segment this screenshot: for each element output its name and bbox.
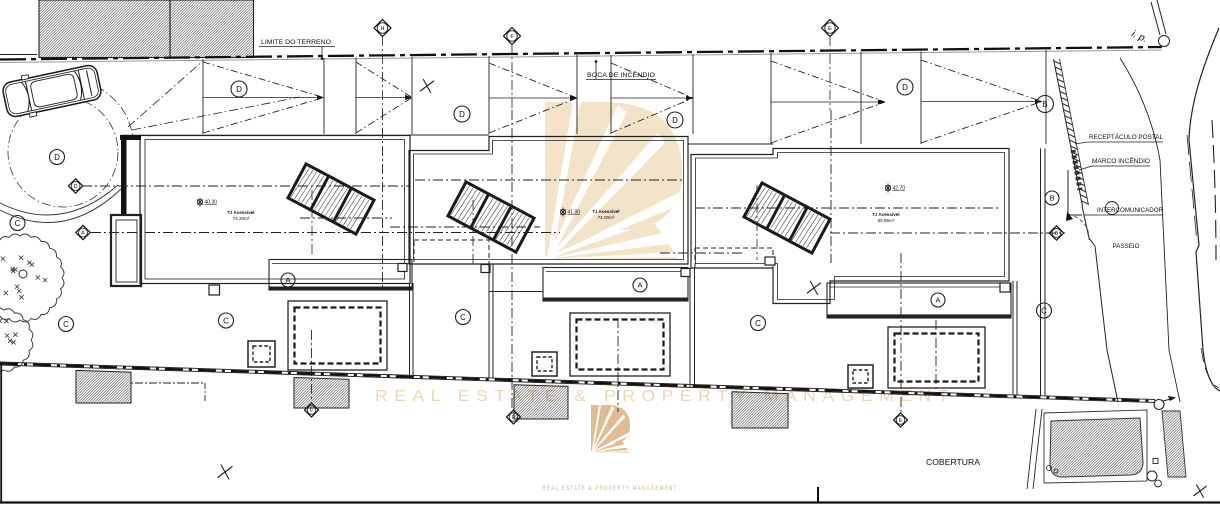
svg-text:60.85m²: 60.85m² <box>878 218 895 223</box>
svg-text:E: E <box>828 26 832 32</box>
svg-text:42.70: 42.70 <box>893 186 906 192</box>
svg-text:C: C <box>63 320 69 329</box>
svg-text:C: C <box>223 316 229 325</box>
svg-text:INTERCOMUNICADOR: INTERCOMUNICADOR <box>1097 207 1163 214</box>
svg-text:A: A <box>935 296 940 305</box>
svg-text:REAL ESTATE & PROPERTY MANAGEM: REAL ESTATE & PROPERTY MANAGEMENT <box>543 485 678 492</box>
svg-text:D: D <box>902 83 908 92</box>
svg-text:B: B <box>1042 100 1047 109</box>
svg-text:C: C <box>460 313 466 322</box>
svg-text:D: D <box>672 116 678 125</box>
svg-text:74.20m²: 74.20m² <box>233 216 250 221</box>
svg-text:74.00m²: 74.00m² <box>598 215 615 220</box>
svg-text:RECEPTÁCULO POSTAL: RECEPTÁCULO POSTAL <box>1089 132 1163 141</box>
svg-text:C: C <box>1041 306 1047 315</box>
svg-text:B: B <box>1049 194 1054 203</box>
svg-text:LIMITE DO TERRENO: LIMITE DO TERRENO <box>261 39 331 46</box>
svg-text:T.I Acessível: T.I Acessível <box>227 210 254 215</box>
svg-text:C: C <box>15 219 21 228</box>
svg-text:C: C <box>755 319 761 328</box>
svg-text:A: A <box>637 281 642 290</box>
svg-text:D: D <box>236 85 242 94</box>
svg-text:F: F <box>310 408 313 414</box>
svg-text:T.I Acessível: T.I Acessível <box>592 209 619 214</box>
svg-text:MARCO INCÊNDIO: MARCO INCÊNDIO <box>1092 156 1150 165</box>
svg-text:D: D <box>74 184 78 190</box>
svg-text:COBERTURA: COBERTURA <box>926 458 981 467</box>
svg-text:PASSEIO: PASSEIO <box>1113 243 1140 250</box>
svg-text:D: D <box>54 153 60 162</box>
svg-text:F: F <box>512 415 515 421</box>
svg-text:T.I Acessível: T.I Acessível <box>872 212 899 217</box>
svg-text:41.00: 41.00 <box>568 210 581 216</box>
svg-text:D: D <box>459 110 465 119</box>
svg-text:BOCA DE INCÊNDIO: BOCA DE INCÊNDIO <box>587 70 655 79</box>
svg-text:40.30: 40.30 <box>205 200 218 206</box>
svg-text:A: A <box>81 230 85 236</box>
svg-text:A: A <box>285 276 290 285</box>
svg-text:H: H <box>381 26 385 32</box>
